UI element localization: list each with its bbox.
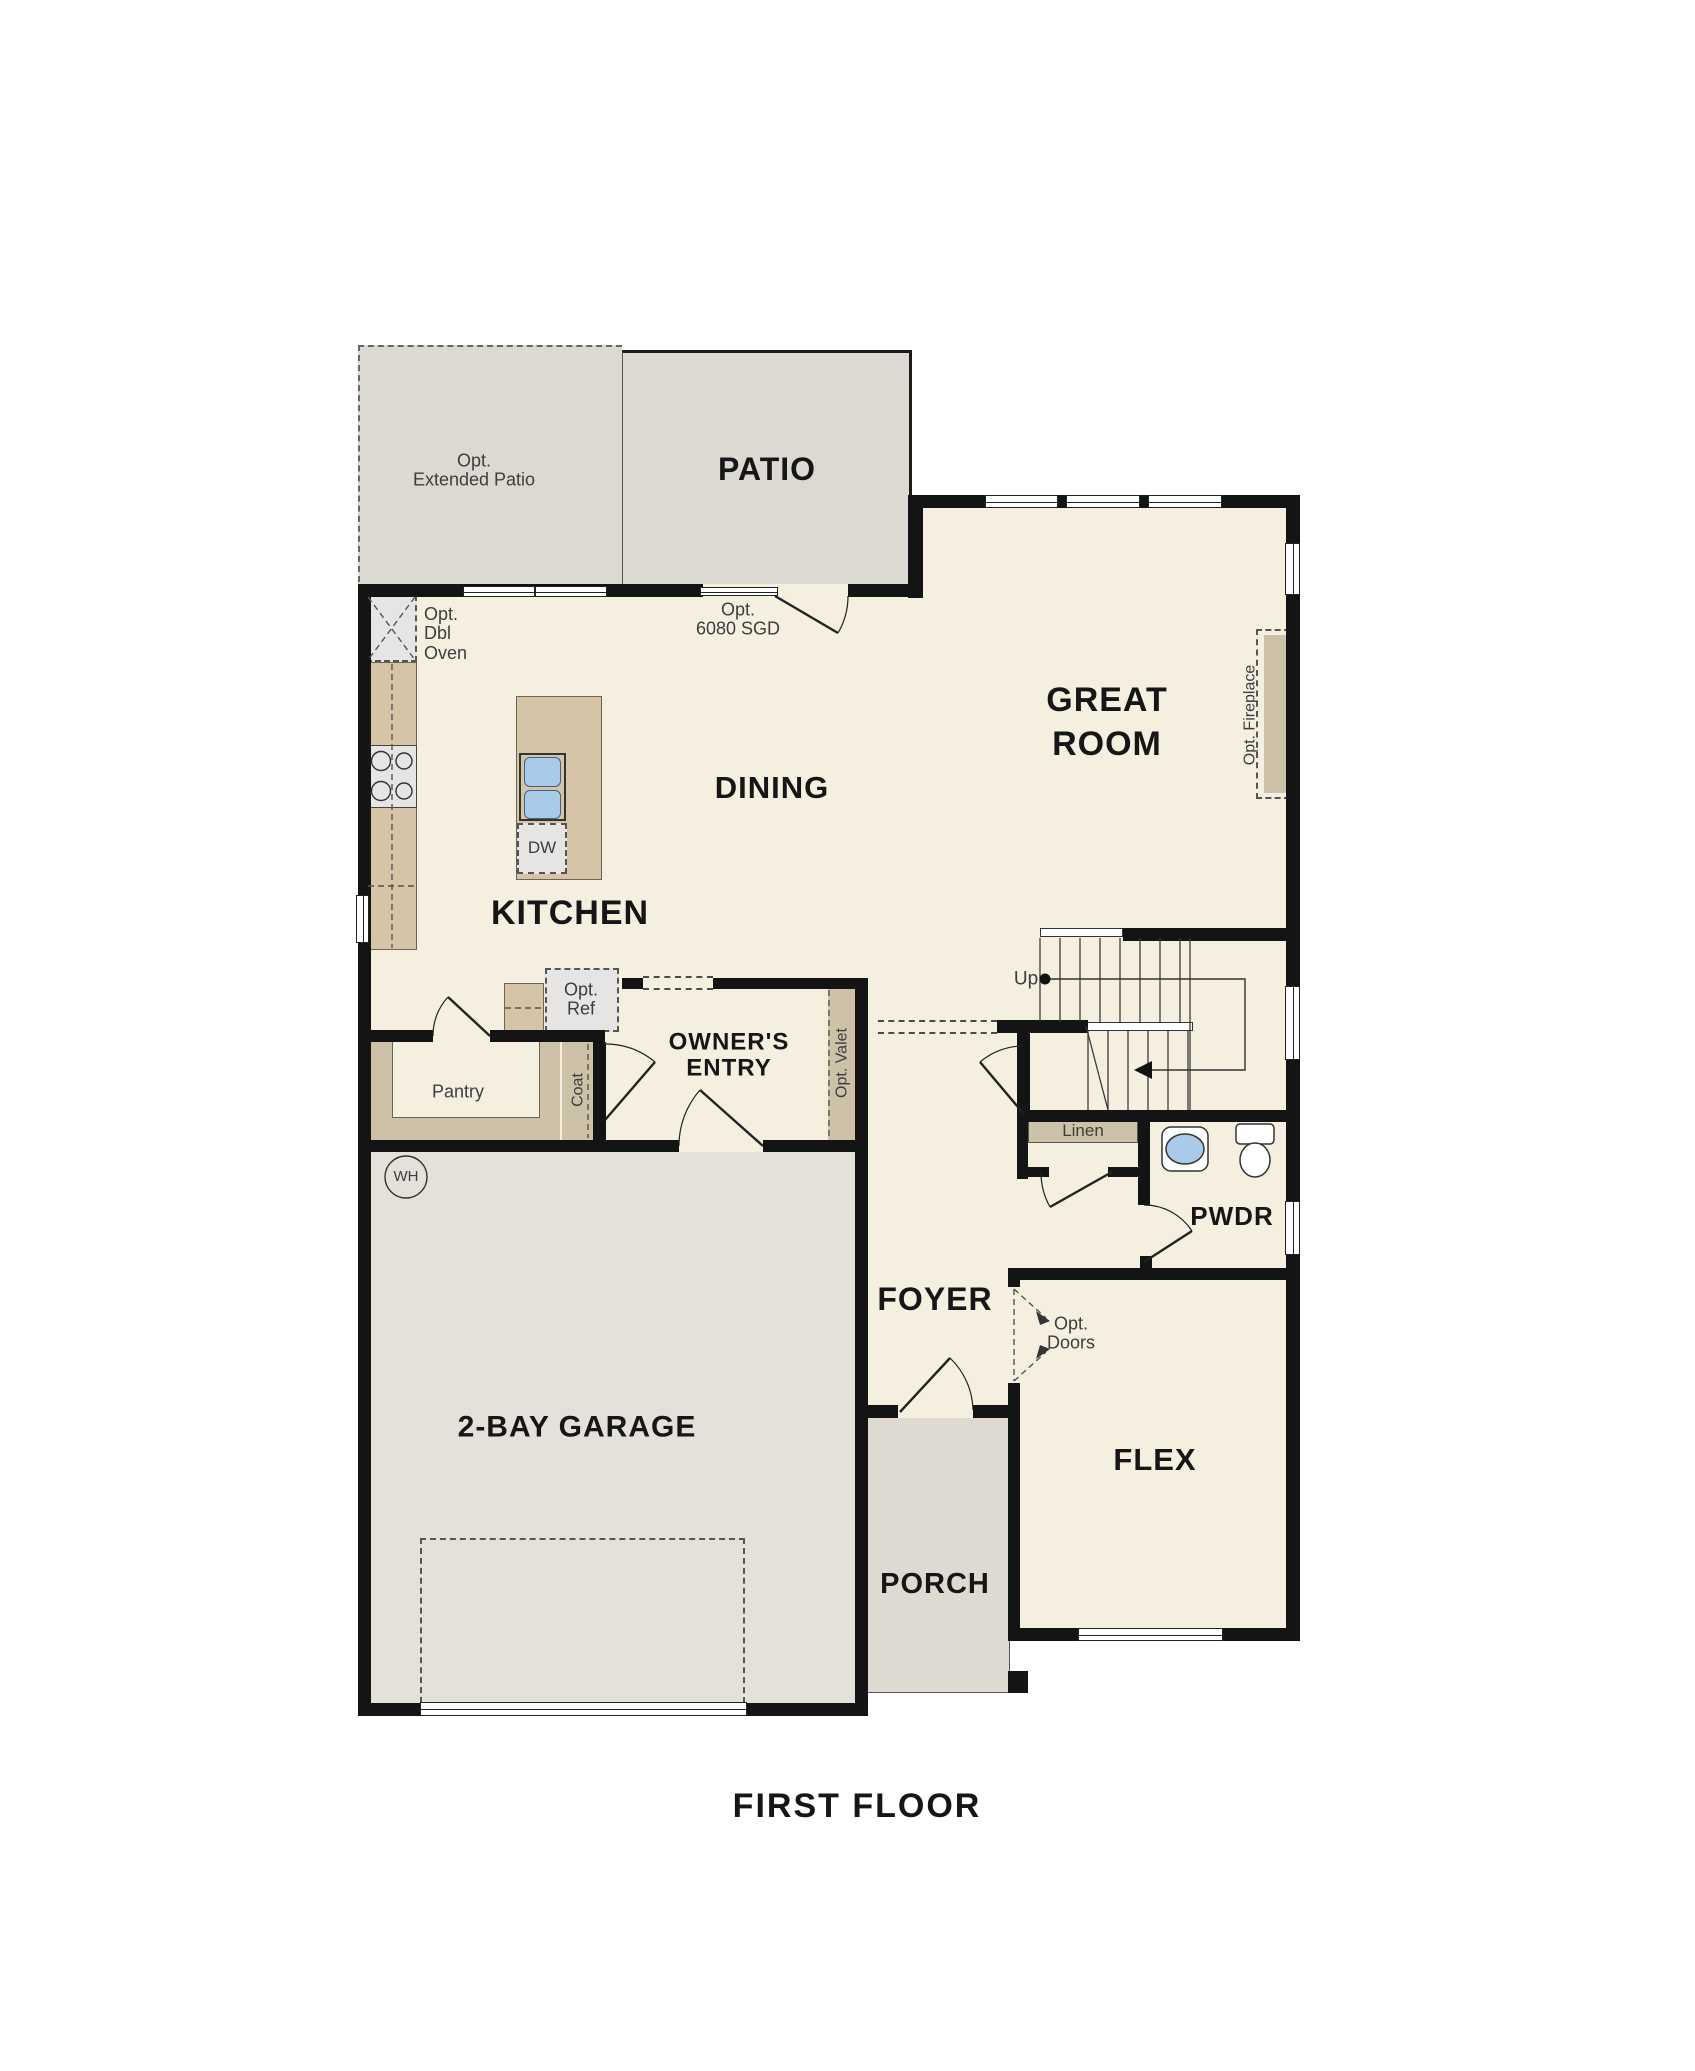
annotation-up: Up [1014,970,1038,991]
annotation-extended-patio: Opt. Extended Patio [413,452,535,491]
sink-basin-bottom [524,790,561,819]
greatroom-window-3 [1148,495,1222,508]
room-label-owners-entry: OWNER'S ENTRY [669,1030,790,1083]
room-label-porch: PORCH [880,1566,990,1604]
wall-pwdr-door-stub [1140,1256,1152,1270]
stair-side-window [1285,986,1300,1060]
hall-cased-opening [878,1020,997,1034]
owners-entry-cased-opening [643,976,713,990]
annotation-line: Doors [1047,1334,1095,1353]
annotation-line: 6080 SGD [696,620,780,639]
garage-door-opening [420,1702,747,1716]
annotation-dbl-oven: Opt. Dbl Oven [424,605,467,663]
annotation-line: Opt. [413,452,535,471]
room-label-dining: DINING [715,768,830,808]
room-label-line: ROOM [1046,722,1167,766]
floor-plan: PATIO Opt. Extended Patio Opt. 6080 SGD … [0,0,1695,2071]
greatroom-window-2 [1066,495,1140,508]
wall-linen-divider [1138,1122,1150,1205]
wall-coat-owners [593,1042,606,1146]
room-label-foyer: FOYER [877,1279,992,1321]
room-label-kitchen: KITCHEN [491,891,649,935]
room-label-line: GREAT [1046,678,1167,722]
wall-hall-stub [997,1020,1088,1033]
wall-flex-top [1008,1268,1300,1280]
wall-stairtop-right [1123,928,1286,941]
wall-linen-bottom-left [1017,1167,1049,1177]
sliding-door-panel [700,587,778,596]
kitchen-side-window [356,895,369,943]
annotation-opt-ref: Opt. Ref [564,981,598,1020]
annotation-line: Opt. [564,981,598,1000]
stair-landing-bar [1086,1022,1193,1031]
greatroom-side-window [1285,543,1300,595]
annotation-opt-doors: Opt. Doors [1047,1315,1095,1354]
annotation-line: Ref [564,1000,598,1019]
room-label-line: ENTRY [669,1056,790,1082]
garage-entry-opening [679,1140,763,1152]
room-label-patio: PATIO [718,449,816,491]
greatroom-window-1 [985,495,1058,508]
pwdr-window [1285,1201,1300,1255]
wall-patio-corner [908,495,923,598]
flex-window [1078,1628,1223,1641]
annotation-dw: DW [528,839,556,857]
wall-stairs-left [1017,1033,1030,1122]
opt-fireplace-unit [1264,635,1288,793]
annotation-line: Opt. [696,601,780,620]
room-label-great-room: GREAT ROOM [1046,678,1167,766]
fridge-counter [504,983,544,1032]
annotation-line: Opt. [424,605,467,624]
wall-garage-top [358,1140,868,1152]
wall-garage-right [855,978,868,1716]
annotation-opt-valet: Opt. Valet [833,1028,850,1098]
double-oven [366,595,417,662]
cooktop [366,745,417,808]
wall-stairs-bottom [1017,1110,1300,1122]
flex-archway-opening [1008,1287,1020,1383]
annotation-coat: Coat [569,1073,586,1107]
annotation-sgd: Opt. 6080 SGD [696,601,780,640]
porch-area [865,1417,1010,1693]
room-label-line: OWNER'S [669,1030,790,1056]
annotation-line: Oven [424,644,467,663]
annotation-wh: WH [394,1169,419,1185]
label-pantry: Pantry [432,1082,484,1101]
front-door-opening [898,1405,973,1418]
garage-door-setback [420,1538,745,1703]
pantry-interior [392,1040,540,1118]
porch-column [1008,1671,1028,1693]
annotation-line: Extended Patio [413,471,535,490]
plan-title: FIRST FLOOR [733,1784,982,1828]
annotation-line: Dbl [424,624,467,643]
stair-top-rail [1040,928,1123,937]
wall-right-exterior [1286,495,1300,1641]
annotation-linen: Linen [1062,1122,1104,1140]
room-label-garage: 2-BAY GARAGE [458,1408,697,1447]
sink-basin-top [524,757,561,787]
annotation-line: Opt. Fireplace [1241,665,1258,765]
pantry-door-opening [433,1030,490,1042]
kitchen-window-1 [463,586,535,597]
room-label-flex: FLEX [1113,1440,1196,1480]
room-label-pwdr: PWDR [1190,1200,1273,1234]
kitchen-window-2 [535,586,607,597]
wall-linen-bottom-right [1108,1167,1150,1177]
annotation-line: Opt. [1047,1315,1095,1334]
